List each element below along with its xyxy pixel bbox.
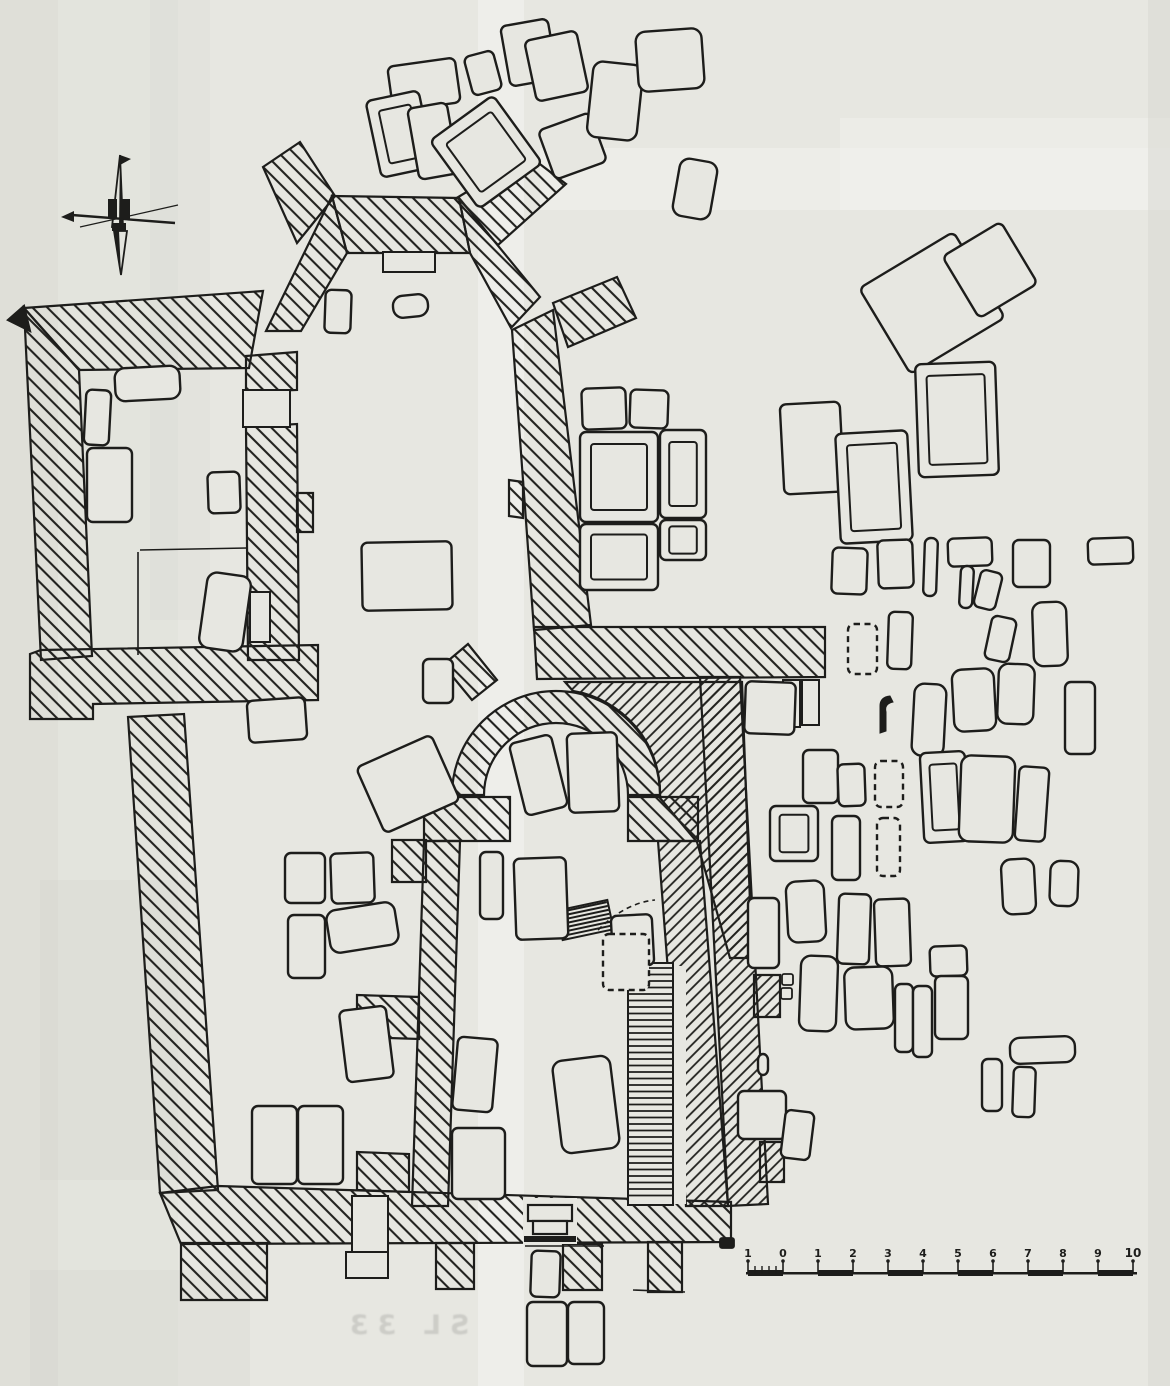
grave-outline: [392, 293, 429, 319]
grave-outline: [552, 1055, 621, 1154]
wall-segment: [436, 1243, 474, 1289]
wall-segment: [563, 1244, 602, 1290]
grave-outline: [285, 853, 325, 903]
grave-outline: [738, 1091, 786, 1139]
scale-label: 0: [779, 1247, 787, 1260]
grave-outline: [567, 732, 620, 813]
scale-label: 10: [1125, 1246, 1142, 1260]
wall-niche: [250, 592, 270, 642]
grave-outline: [929, 945, 967, 976]
grave-outline: [1065, 682, 1095, 754]
grave-outline: [1001, 858, 1037, 915]
grave-outline: [780, 401, 845, 494]
grave-outline: [84, 389, 112, 445]
wall-segment: [181, 1243, 267, 1300]
wall-segment: [392, 840, 426, 882]
grave-outline: [1012, 1067, 1036, 1118]
grave-outline: [580, 524, 658, 590]
grave-outline: [780, 1109, 815, 1160]
grave-outline: [877, 818, 900, 876]
grave-outline: [660, 430, 706, 518]
grave-outline: [339, 1005, 394, 1082]
paper-band: [840, 118, 1170, 210]
grave-outline: [911, 683, 947, 757]
grave-outline: [1010, 1036, 1076, 1064]
grave-outline: [959, 566, 974, 609]
scale-label: 6: [989, 1247, 997, 1260]
wall-segment: [246, 352, 297, 392]
entrance-step: [533, 1221, 567, 1234]
grave-outline: [1032, 601, 1068, 666]
grave-outline: [837, 764, 865, 807]
grave-outline: [744, 681, 796, 735]
wall-segment: [357, 1152, 409, 1192]
scale-segment: [958, 1270, 993, 1276]
paper-band: [1148, 0, 1170, 1386]
grave-outline: [114, 365, 181, 401]
grave-outline: [423, 659, 453, 703]
grave-outline: [874, 898, 911, 966]
wall-niche: [802, 680, 819, 725]
scale-segment: [818, 1270, 853, 1276]
wall-niche: [352, 1196, 388, 1260]
wall-segment: [648, 1242, 682, 1292]
grave-outline: [325, 901, 400, 954]
grave-outline: [452, 1128, 505, 1199]
scale-label: 8: [1059, 1247, 1067, 1260]
grave-outline: [629, 389, 668, 428]
grave-outline: [603, 934, 649, 990]
grave-outline: [848, 624, 877, 674]
wall-segment: [509, 480, 523, 518]
grave-outline: [660, 520, 706, 560]
grave-outline: [877, 539, 914, 588]
wall-segment: [754, 975, 780, 1017]
wall-segment: [297, 493, 313, 532]
scale-label: 2: [849, 1247, 857, 1260]
entrance-step: [528, 1205, 572, 1221]
stone-find: [781, 988, 792, 999]
grave-outline: [1014, 766, 1049, 842]
scanned-plan-page: 1012345678910 SL 33: [0, 0, 1170, 1386]
grave-outline: [581, 387, 626, 430]
wall-niche: [243, 390, 290, 427]
grave-outline: [875, 761, 903, 807]
grave-outline: [758, 1054, 768, 1075]
grave-outline: [982, 1059, 1002, 1111]
grave-outline: [831, 547, 868, 594]
wall-segment: [628, 797, 698, 841]
grave-outline: [480, 852, 503, 919]
grave-outline: [635, 28, 705, 92]
grave-outline: [895, 984, 913, 1052]
scale-label: 1: [814, 1247, 822, 1260]
grave-outline: [1049, 861, 1079, 907]
grave-outline: [530, 1251, 561, 1298]
wall-segment: [534, 627, 825, 679]
grave-outline: [252, 1106, 297, 1184]
grave-outline: [913, 986, 932, 1057]
grave-outline: [330, 852, 375, 903]
scale-label: 5: [954, 1247, 962, 1260]
scale-label: 4: [919, 1247, 927, 1260]
grave-outline: [997, 663, 1035, 724]
stone-find: [720, 1238, 734, 1248]
grave-outline: [832, 816, 860, 880]
grave-outline: [527, 1302, 567, 1366]
wall-niche: [383, 252, 435, 272]
grave-outline: [948, 537, 993, 567]
wall-niche: [346, 1252, 388, 1278]
grave-outline: [452, 1036, 498, 1112]
scale-label: 9: [1094, 1247, 1102, 1260]
grave-outline: [935, 976, 968, 1039]
grave-outline: [298, 1106, 343, 1184]
grave-outline: [915, 362, 999, 478]
grave-outline: [887, 612, 913, 670]
grave-outline: [785, 880, 826, 943]
entrance-threshold: [524, 1236, 576, 1242]
grave-outline: [799, 955, 839, 1031]
stair-strip: [674, 966, 686, 1204]
grave-outline: [1013, 540, 1050, 587]
grave-outline: [247, 697, 308, 743]
wall-segment: [332, 196, 470, 253]
grave-outline: [951, 668, 996, 732]
grave-outline: [923, 538, 938, 596]
grave-outline: [748, 898, 779, 968]
grave-outline: [324, 290, 351, 334]
grave-outline: [959, 755, 1016, 843]
grave-outline: [586, 61, 644, 142]
scale-baseline: [746, 1272, 1137, 1275]
stone-find: [782, 974, 793, 985]
grave-outline: [198, 571, 252, 652]
grave-outline: [207, 471, 240, 513]
grave-outline: [87, 448, 132, 522]
scale-label: 3: [884, 1247, 892, 1260]
grave-outline: [361, 541, 452, 611]
grave-outline: [524, 30, 589, 102]
scale-segment: [888, 1270, 923, 1276]
grave-outline: [835, 430, 913, 544]
grave-outline: [1088, 537, 1134, 565]
scale-segment: [1028, 1270, 1063, 1276]
grave-outline: [803, 750, 838, 803]
scale-label: 7: [1024, 1247, 1032, 1260]
scale-segment: [1098, 1270, 1133, 1276]
grave-outline: [837, 893, 871, 964]
grave-outline: [514, 857, 569, 940]
floor-plan-drawing: 1012345678910: [0, 0, 1170, 1386]
grave-outline: [288, 915, 325, 978]
grave-outline: [770, 806, 818, 861]
grave-outline: [568, 1302, 604, 1364]
grave-outline: [844, 966, 894, 1030]
scale-label: 1: [744, 1247, 752, 1260]
grave-outline: [580, 432, 658, 522]
scale-segment: [748, 1270, 783, 1276]
